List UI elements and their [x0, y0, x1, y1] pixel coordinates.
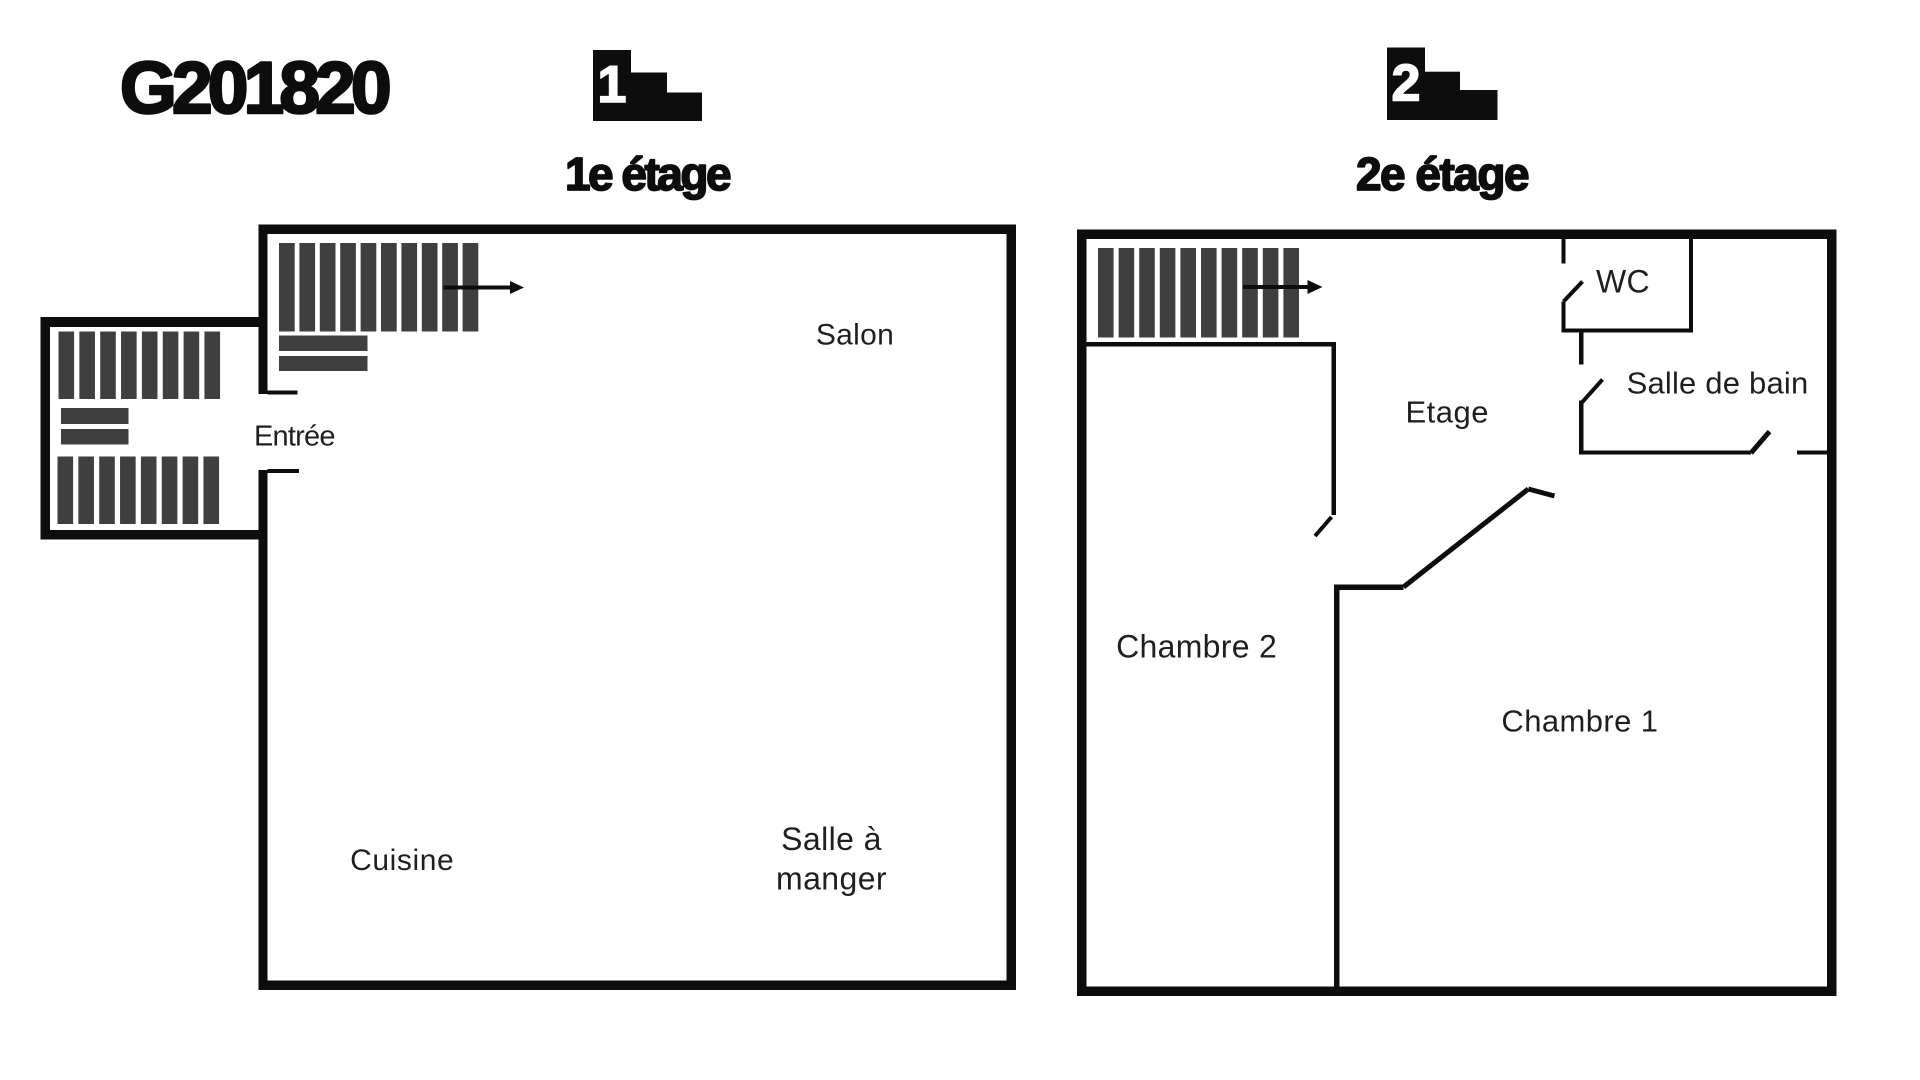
svg-text:WC: WC	[1596, 263, 1650, 299]
svg-text:manger: manger	[776, 861, 887, 897]
svg-text:Chambre 1: Chambre 1	[1501, 704, 1658, 739]
svg-text:1: 1	[598, 56, 627, 114]
svg-text:Salle à: Salle à	[781, 821, 882, 857]
svg-text:Cuisine: Cuisine	[350, 844, 454, 877]
svg-text:1e étage: 1e étage	[565, 148, 731, 200]
svg-text:Salle de bain: Salle de bain	[1627, 365, 1809, 400]
svg-text:2: 2	[1392, 55, 1421, 113]
svg-text:G201820: G201820	[120, 48, 389, 129]
svg-text:Entrée: Entrée	[254, 420, 335, 452]
svg-text:2e étage: 2e étage	[1356, 148, 1529, 200]
svg-text:Chambre 2: Chambre 2	[1116, 629, 1277, 665]
svg-text:Salon: Salon	[816, 319, 894, 352]
svg-text:Etage: Etage	[1405, 394, 1489, 429]
